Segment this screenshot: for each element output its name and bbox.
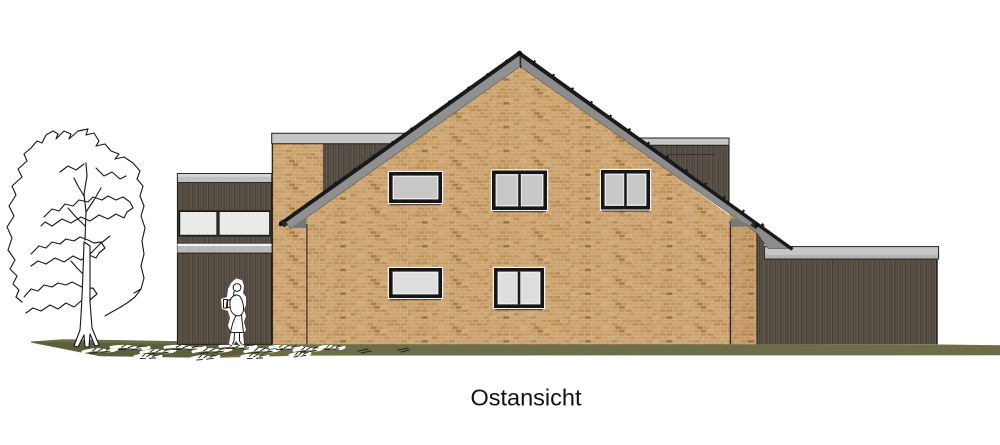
svg-text:Ostansicht: Ostansicht <box>470 384 581 410</box>
